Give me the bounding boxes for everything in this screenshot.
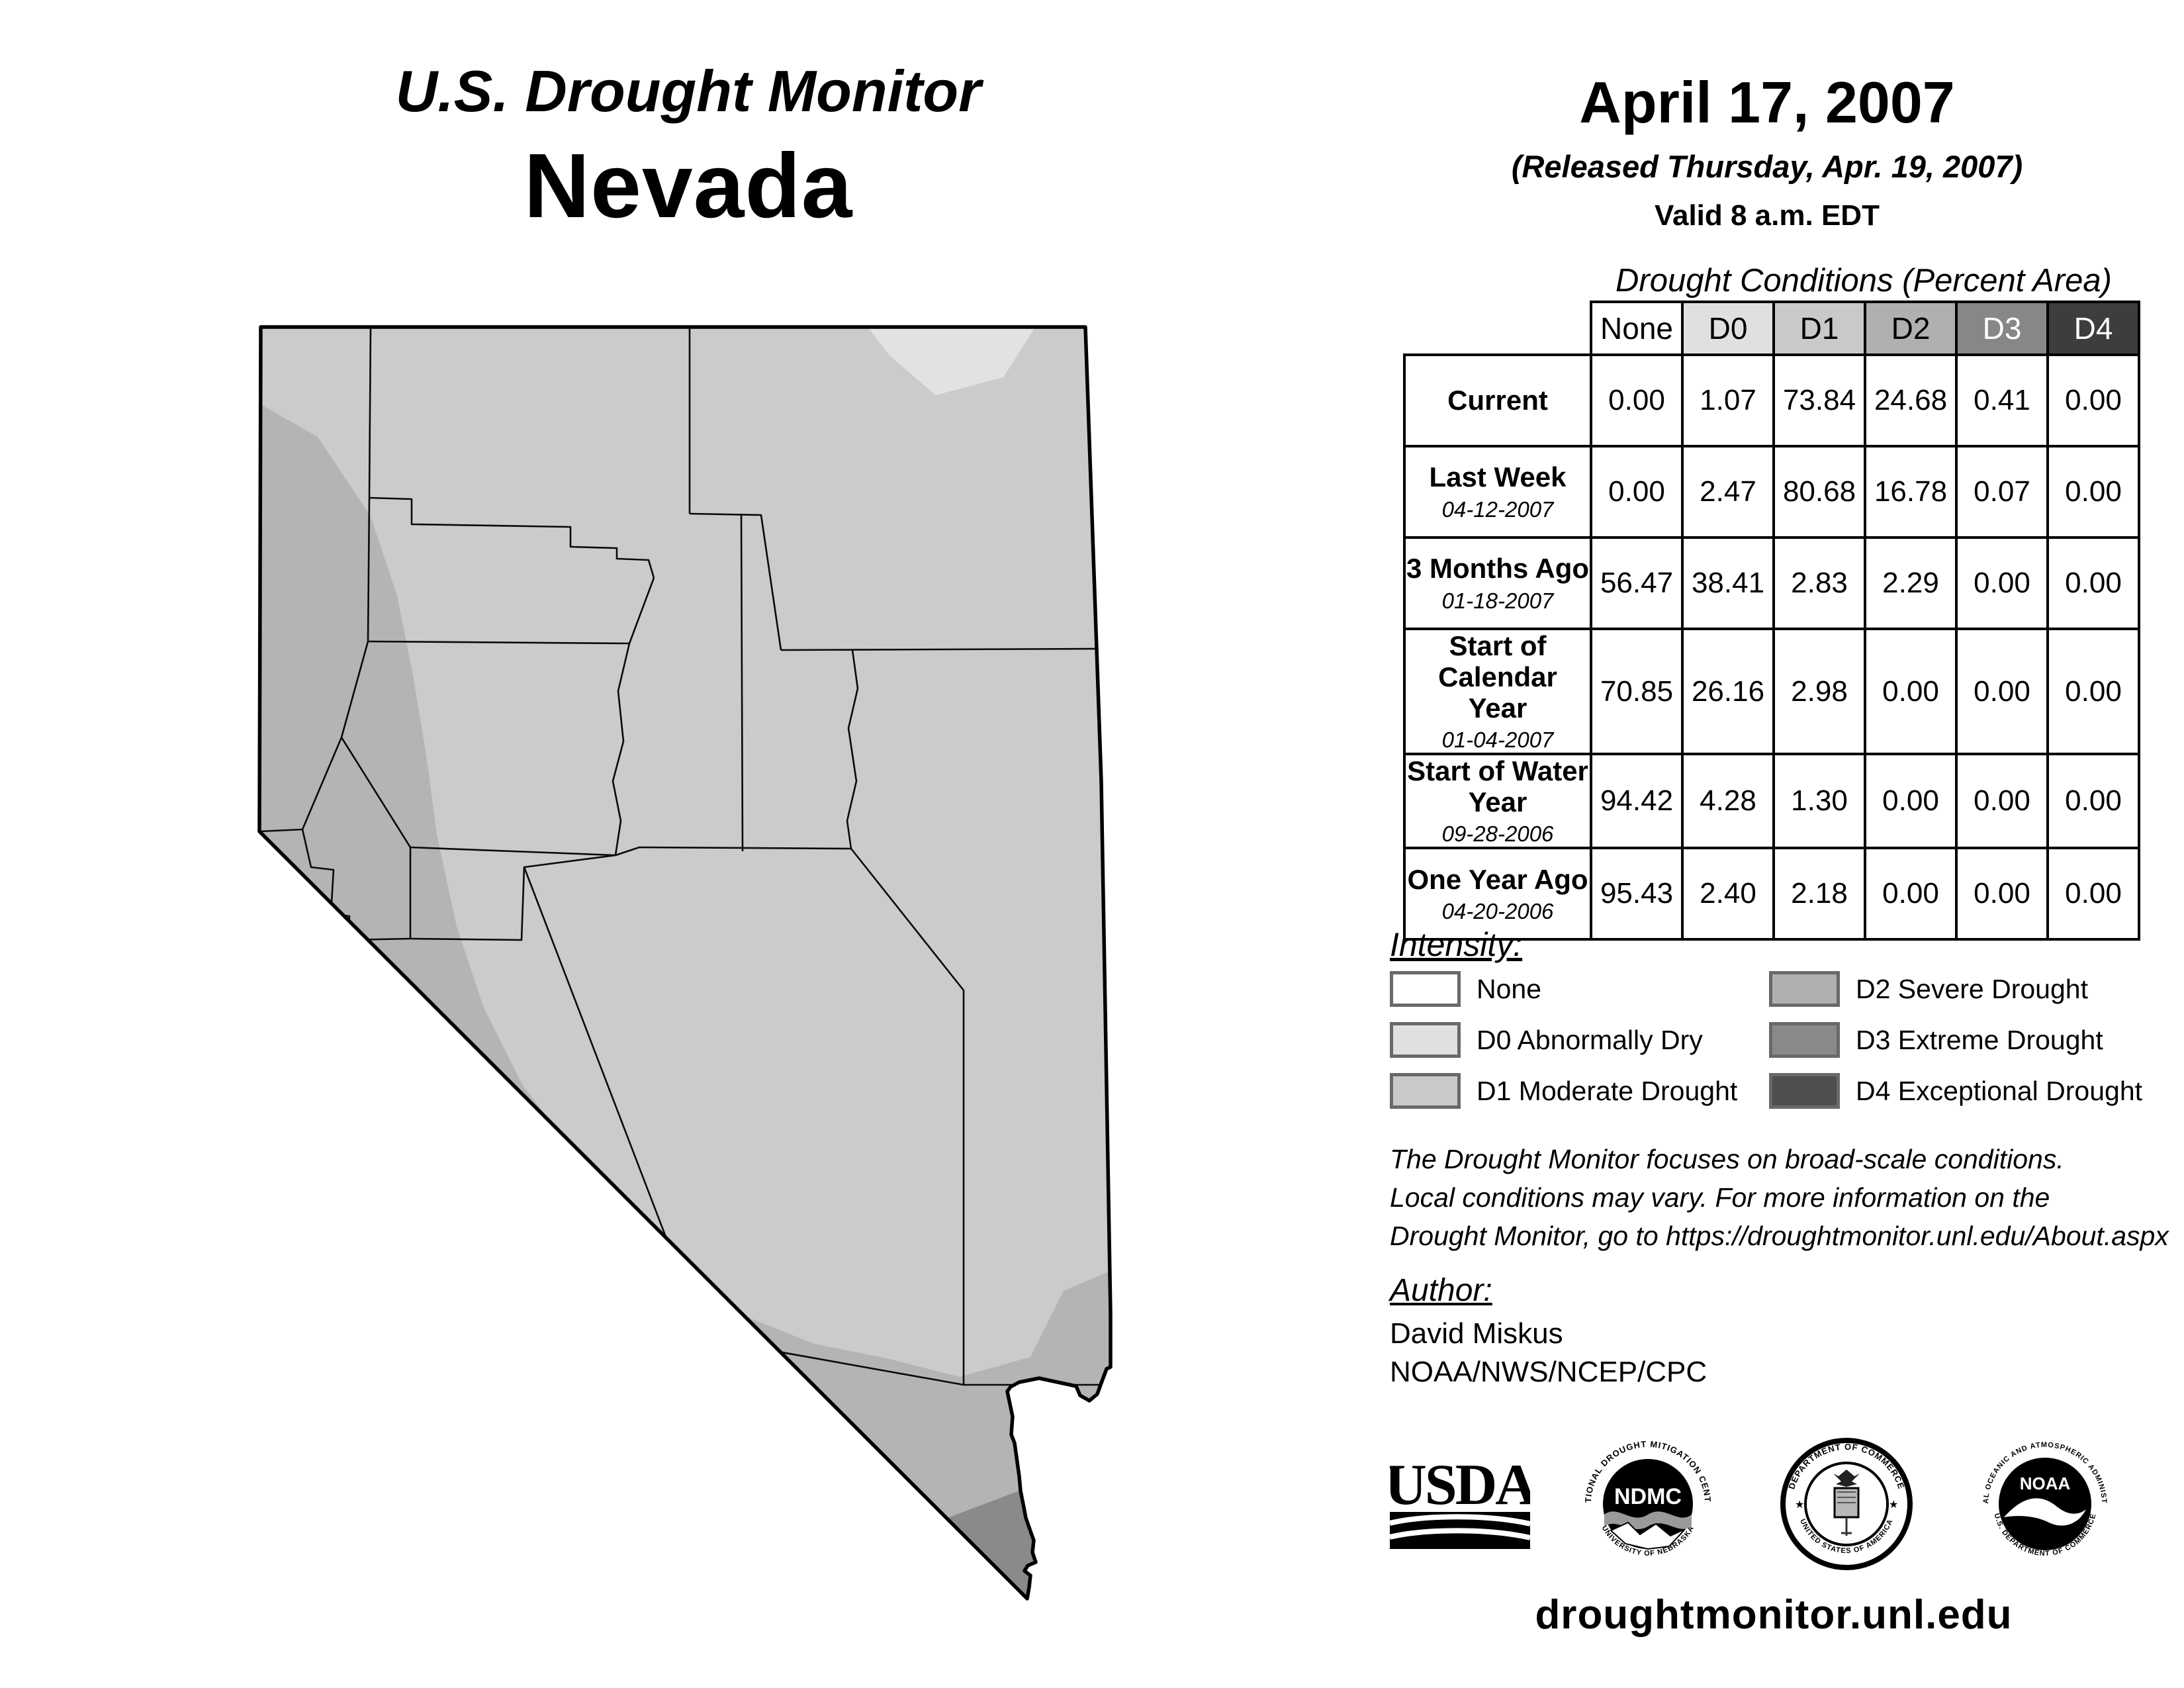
- legend-swatch-d1: [1390, 1073, 1461, 1109]
- column-header-d1: D1: [1774, 302, 1865, 355]
- legend-label: D2 Severe Drought: [1856, 974, 2088, 1005]
- table-title: Drought Conditions (Percent Area): [1590, 262, 2138, 299]
- cell-value: 94.42: [1591, 754, 1682, 848]
- cell-value: 4.28: [1682, 754, 1774, 848]
- legend-swatch-d4: [1769, 1073, 1840, 1109]
- column-header-d4: D4: [2048, 302, 2139, 355]
- row-label: One Year Ago: [1406, 864, 1590, 895]
- cell-value: 2.40: [1682, 848, 1774, 939]
- disclaimer-line: The Drought Monitor focuses on broad-sca…: [1390, 1140, 2169, 1178]
- table-row-current: Current 0.00 1.07 73.84 24.68 0.41 0.00: [1404, 355, 2139, 446]
- row-label: Last Week: [1406, 461, 1590, 492]
- row-label: Start of Water Year: [1406, 755, 1590, 818]
- disclaimer-line: Local conditions may vary. For more info…: [1390, 1178, 2169, 1217]
- cell-value: 0.00: [2048, 355, 2139, 446]
- legend-item-d4: D4 Exceptional Drought: [1769, 1074, 2142, 1108]
- usda-logo: USDA: [1390, 1455, 1530, 1549]
- legend-label: D1 Moderate Drought: [1477, 1076, 1737, 1107]
- cell-value: 73.84: [1774, 355, 1865, 446]
- cell-value: 0.00: [1956, 848, 2048, 939]
- cell-value: 2.18: [1774, 848, 1865, 939]
- column-header-none: None: [1591, 302, 1682, 355]
- cell-value: 1.07: [1682, 355, 1774, 446]
- row-label: Start of Calendar Year: [1406, 630, 1590, 724]
- legend-swatch-d0: [1390, 1022, 1461, 1058]
- date-block: April 17, 2007 (Released Thursday, Apr. …: [1390, 69, 2144, 232]
- released-date: (Released Thursday, Apr. 19, 2007): [1390, 148, 2144, 185]
- nevada-drought-map: [251, 318, 1125, 1615]
- legend-label: D3 Extreme Drought: [1856, 1025, 2103, 1056]
- column-header-d0: D0: [1682, 302, 1774, 355]
- table-row-last-week: Last Week 04-12-2007 0.00 2.47 80.68 16.…: [1404, 446, 2139, 538]
- legend-swatch-d3: [1769, 1022, 1840, 1058]
- row-date: 04-20-2006: [1406, 899, 1590, 924]
- cell-value: 2.98: [1774, 629, 1865, 754]
- column-header-d2: D2: [1865, 302, 1956, 355]
- legend-label: None: [1477, 974, 1541, 1005]
- legend-item-none: None: [1390, 972, 1737, 1006]
- cell-value: 0.00: [1956, 754, 2048, 848]
- cell-value: 2.47: [1682, 446, 1774, 538]
- disclaimer-text: The Drought Monitor focuses on broad-sca…: [1390, 1140, 2169, 1256]
- state-name: Nevada: [258, 134, 1118, 239]
- cell-value: 26.16: [1682, 629, 1774, 754]
- intensity-heading: Intensity:: [1390, 925, 1522, 964]
- cell-value: 80.68: [1774, 446, 1865, 538]
- cell-value: 70.85: [1591, 629, 1682, 754]
- legend-item-d1: D1 Moderate Drought: [1390, 1074, 1737, 1108]
- ndmc-logo: NATIONAL DROUGHT MITIGATION CENTER UNIVE…: [1582, 1438, 1714, 1570]
- legend-item-d0: D0 Abnormally Dry: [1390, 1023, 1737, 1057]
- row-date: 01-18-2007: [1406, 588, 1590, 614]
- svg-text:★: ★: [1889, 1499, 1898, 1511]
- usda-wordmark: USDA: [1390, 1455, 1530, 1517]
- legend-label: D0 Abnormally Dry: [1477, 1025, 1703, 1056]
- legend-column-right: D2 Severe Drought D3 Extreme Drought D4 …: [1769, 972, 2142, 1108]
- table-row-start-calendar-year: Start of Calendar Year 01-04-2007 70.85 …: [1404, 629, 2139, 754]
- legend-item-d3: D3 Extreme Drought: [1769, 1023, 2142, 1057]
- cell-value: 0.00: [1591, 446, 1682, 538]
- commerce-seal-logo: DEPARTMENT OF COMMERCE UNITED STATES OF …: [1780, 1438, 1913, 1570]
- cell-value: 38.41: [1682, 538, 1774, 629]
- cell-value: 0.00: [1956, 538, 2048, 629]
- row-label: 3 Months Ago: [1406, 553, 1590, 584]
- conditions-table: None D0 D1 D2 D3 D4 Current 0.00 1.07 73…: [1403, 301, 2140, 941]
- author-org: NOAA/NWS/NCEP/CPC: [1390, 1356, 1707, 1389]
- cell-value: 0.00: [1865, 848, 1956, 939]
- cell-value: 0.07: [1956, 446, 2048, 538]
- cell-value: 0.00: [1591, 355, 1682, 446]
- table-row-3-months-ago: 3 Months Ago 01-18-2007 56.47 38.41 2.83…: [1404, 538, 2139, 629]
- author-name: David Miskus: [1390, 1317, 1563, 1350]
- disclaimer-line: Drought Monitor, go to https://droughtmo…: [1390, 1217, 2169, 1255]
- cell-value: 95.43: [1591, 848, 1682, 939]
- legend-item-d2: D2 Severe Drought: [1769, 972, 2142, 1006]
- report-date: April 17, 2007: [1390, 69, 2144, 136]
- page-title: U.S. Drought Monitor: [258, 61, 1118, 122]
- footer-url: droughtmonitor.unl.edu: [1502, 1591, 2045, 1638]
- cell-value: 0.00: [2048, 538, 2139, 629]
- noaa-wordmark: NOAA: [2020, 1474, 2071, 1493]
- cell-value: 0.41: [1956, 355, 2048, 446]
- title-block: U.S. Drought Monitor Nevada: [258, 61, 1118, 239]
- cell-value: 0.00: [1865, 754, 1956, 848]
- row-date: 09-28-2006: [1406, 821, 1590, 847]
- valid-time: Valid 8 a.m. EDT: [1390, 199, 2144, 232]
- table-row-start-water-year: Start of Water Year 09-28-2006 94.42 4.2…: [1404, 754, 2139, 848]
- cell-value: 0.00: [2048, 754, 2139, 848]
- cell-value: 0.00: [2048, 629, 2139, 754]
- cell-value: 56.47: [1591, 538, 1682, 629]
- legend-label: D4 Exceptional Drought: [1856, 1076, 2142, 1107]
- column-header-d3: D3: [1956, 302, 2048, 355]
- cell-value: 16.78: [1865, 446, 1956, 538]
- row-label: Current: [1406, 385, 1590, 416]
- cell-value: 0.00: [1865, 629, 1956, 754]
- legend-column-left: None D0 Abnormally Dry D1 Moderate Droug…: [1390, 972, 1737, 1108]
- cell-value: 0.00: [2048, 848, 2139, 939]
- cell-value: 0.00: [1956, 629, 2048, 754]
- svg-text:★: ★: [1795, 1499, 1804, 1511]
- cell-value: 24.68: [1865, 355, 1956, 446]
- legend-swatch-d2: [1769, 971, 1840, 1007]
- cell-value: 2.83: [1774, 538, 1865, 629]
- cell-value: 1.30: [1774, 754, 1865, 848]
- noaa-logo: NATIONAL OCEANIC AND ATMOSPHERIC ADMINIS…: [1979, 1438, 2111, 1570]
- cell-value: 0.00: [2048, 446, 2139, 538]
- cell-value: 2.29: [1865, 538, 1956, 629]
- ndmc-wordmark: NDMC: [1614, 1484, 1682, 1509]
- legend-swatch-none: [1390, 971, 1461, 1007]
- author-heading: Author:: [1390, 1272, 1492, 1309]
- row-date: 01-04-2007: [1406, 727, 1590, 753]
- row-date: 04-12-2007: [1406, 497, 1590, 522]
- table-corner-blank: [1404, 302, 1591, 355]
